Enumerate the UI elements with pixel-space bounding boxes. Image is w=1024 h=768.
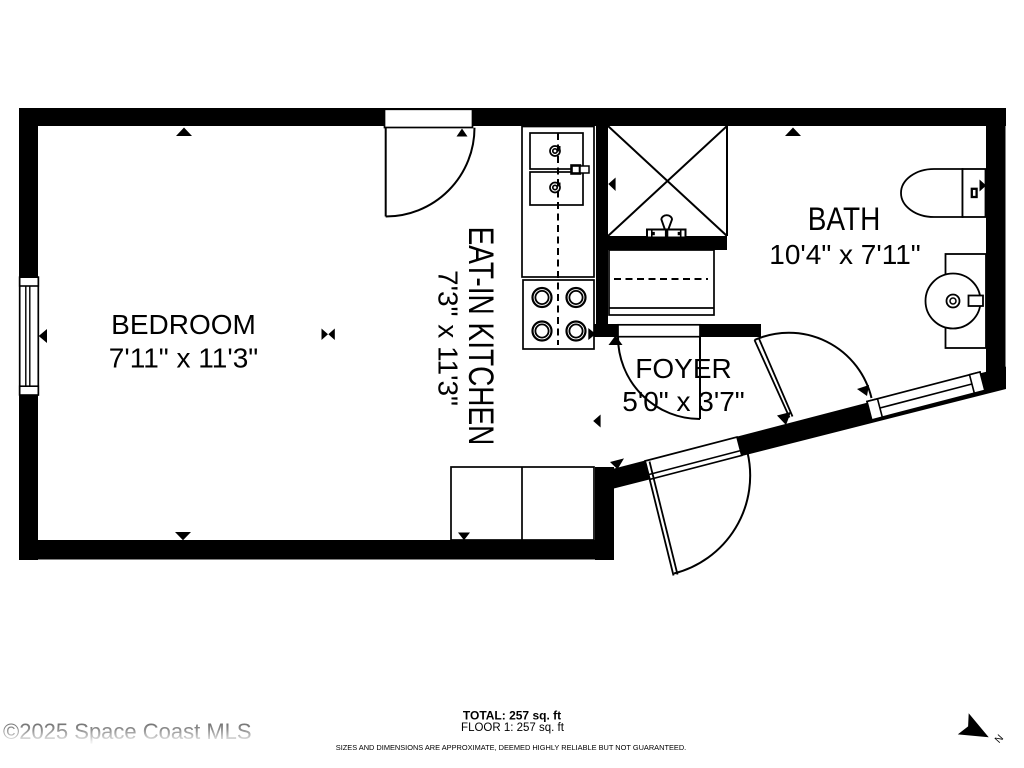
- svg-text:TOTAL: 257 sq. ft: TOTAL: 257 sq. ft: [463, 709, 561, 723]
- svg-text:BATH: BATH: [808, 202, 881, 237]
- svg-text:EAT-IN KITCHEN: EAT-IN KITCHEN: [461, 227, 501, 446]
- svg-text:FOYER: FOYER: [635, 353, 731, 384]
- svg-text:7'3" x 11'3": 7'3" x 11'3": [433, 270, 464, 406]
- svg-text:©2025 Space Coast MLS: ©2025 Space Coast MLS: [3, 719, 252, 744]
- svg-text:7'11" x 11'3": 7'11" x 11'3": [109, 343, 258, 374]
- svg-text:BEDROOM: BEDROOM: [111, 309, 256, 340]
- svg-text:10'4" x 7'11": 10'4" x 7'11": [769, 239, 920, 270]
- svg-text:SIZES AND DIMENSIONS ARE APPRO: SIZES AND DIMENSIONS ARE APPROXIMATE, DE…: [336, 743, 686, 752]
- svg-text:5'0" x 3'7": 5'0" x 3'7": [622, 386, 744, 417]
- svg-text:FLOOR 1: 257 sq. ft: FLOOR 1: 257 sq. ft: [461, 722, 565, 734]
